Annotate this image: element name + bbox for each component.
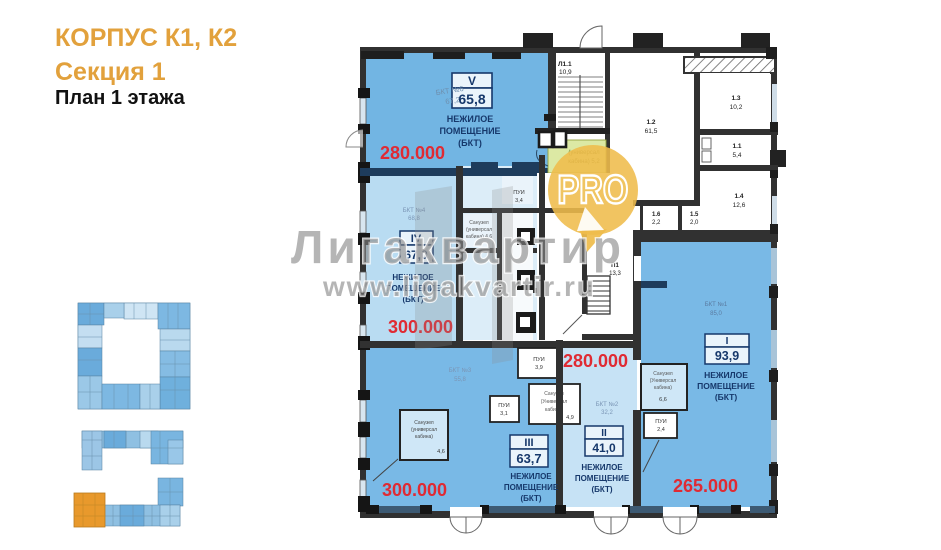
svg-text:ПУИ: ПУИ [533, 357, 544, 363]
svg-text:ПОМЕЩЕНИЕ: ПОМЕЩЕНИЕ [575, 474, 630, 483]
svg-text:1.6: 1.6 [652, 212, 661, 218]
svg-text:2,4: 2,4 [657, 427, 665, 433]
svg-text:ПОМЕЩЕНИЕ: ПОМЕЩЕНИЕ [697, 381, 755, 391]
svg-text:(БКТ): (БКТ) [458, 138, 482, 148]
svg-text:6,6: 6,6 [659, 397, 667, 403]
svg-text:Секция 1: Секция 1 [55, 58, 166, 86]
svg-text:БКТ №2: БКТ №2 [596, 401, 619, 408]
svg-text:12,6: 12,6 [733, 202, 746, 209]
svg-text:ПУИ: ПУИ [498, 403, 509, 409]
svg-text:V: V [468, 74, 476, 88]
svg-text:3,9: 3,9 [535, 365, 543, 371]
svg-text:3,1: 3,1 [500, 411, 508, 417]
svg-text:93,9: 93,9 [715, 349, 739, 363]
svg-text:Санузел: Санузел [414, 420, 434, 426]
svg-text:4,6: 4,6 [437, 449, 445, 455]
svg-text:(Универсал: (Универсал [650, 378, 677, 384]
svg-text:280.000: 280.000 [563, 351, 628, 371]
svg-text:(универсал: (универсал [411, 427, 437, 433]
svg-text:I: I [726, 336, 729, 347]
svg-text:55,8: 55,8 [454, 377, 466, 383]
svg-text:(БКТ): (БКТ) [715, 392, 738, 402]
svg-text:Л1.1: Л1.1 [558, 61, 572, 68]
svg-text:III: III [524, 437, 533, 449]
svg-text:ПУИ: ПУИ [655, 419, 666, 425]
svg-text:II: II [601, 428, 607, 439]
svg-text:32,2: 32,2 [601, 410, 613, 416]
svg-text:(Универсал: (Универсал [541, 399, 568, 405]
svg-text:1.5: 1.5 [690, 212, 699, 218]
svg-text:3,4: 3,4 [515, 198, 523, 204]
svg-text:www.ligakvartir.ru: www.ligakvartir.ru [322, 271, 596, 302]
svg-text:2,2: 2,2 [652, 220, 661, 226]
svg-text:БКТ №3: БКТ №3 [449, 367, 472, 374]
svg-text:ПОМЕЩЕНИЕ: ПОМЕЩЕНИЕ [439, 126, 500, 136]
svg-text:1.1: 1.1 [732, 143, 741, 150]
svg-text:65,8: 65,8 [458, 91, 485, 107]
svg-text:БКТ №1: БКТ №1 [705, 301, 728, 308]
svg-text:10,2: 10,2 [730, 104, 743, 111]
svg-text:ПОМЕЩЕНИЕ: ПОМЕЩЕНИЕ [504, 483, 559, 492]
svg-text:1.2: 1.2 [646, 119, 655, 126]
svg-text:1.4: 1.4 [734, 193, 743, 200]
svg-text:кабина): кабина) [415, 434, 433, 440]
svg-text:ПУИ: ПУИ [513, 190, 524, 196]
svg-text:265.000: 265.000 [673, 476, 738, 496]
svg-text:Санузел: Санузел [653, 371, 673, 377]
svg-text:НЕЖИЛОЕ: НЕЖИЛОЕ [447, 114, 493, 124]
svg-text:(БКТ): (БКТ) [591, 485, 612, 494]
svg-text:Лигаквартир: Лигаквартир [291, 221, 625, 273]
svg-text:63,7: 63,7 [516, 451, 541, 466]
svg-text:кабина): кабина) [654, 385, 672, 391]
svg-text:4,9: 4,9 [566, 415, 574, 421]
svg-text:5,4: 5,4 [732, 152, 741, 159]
svg-text:НЕЖИЛОЕ: НЕЖИЛОЕ [581, 463, 623, 472]
svg-text:1.3: 1.3 [731, 95, 740, 102]
svg-text:НЕЖИЛОЕ: НЕЖИЛОЕ [510, 472, 552, 481]
svg-text:КОРПУС К1, К2: КОРПУС К1, К2 [55, 24, 237, 52]
svg-text:280.000: 280.000 [380, 143, 445, 163]
svg-text:НЕЖИЛОЕ: НЕЖИЛОЕ [704, 370, 748, 380]
svg-text:2,0: 2,0 [690, 220, 699, 226]
svg-text:PRO: PRO [557, 167, 628, 212]
svg-text:План 1 этажа: План 1 этажа [55, 87, 186, 109]
svg-text:300.000: 300.000 [382, 480, 447, 500]
svg-text:61,5: 61,5 [645, 128, 658, 135]
svg-text:85,0: 85,0 [710, 311, 722, 317]
svg-text:41,0: 41,0 [592, 441, 616, 455]
svg-text:(БКТ): (БКТ) [520, 494, 541, 503]
svg-text:10,9: 10,9 [559, 69, 572, 76]
